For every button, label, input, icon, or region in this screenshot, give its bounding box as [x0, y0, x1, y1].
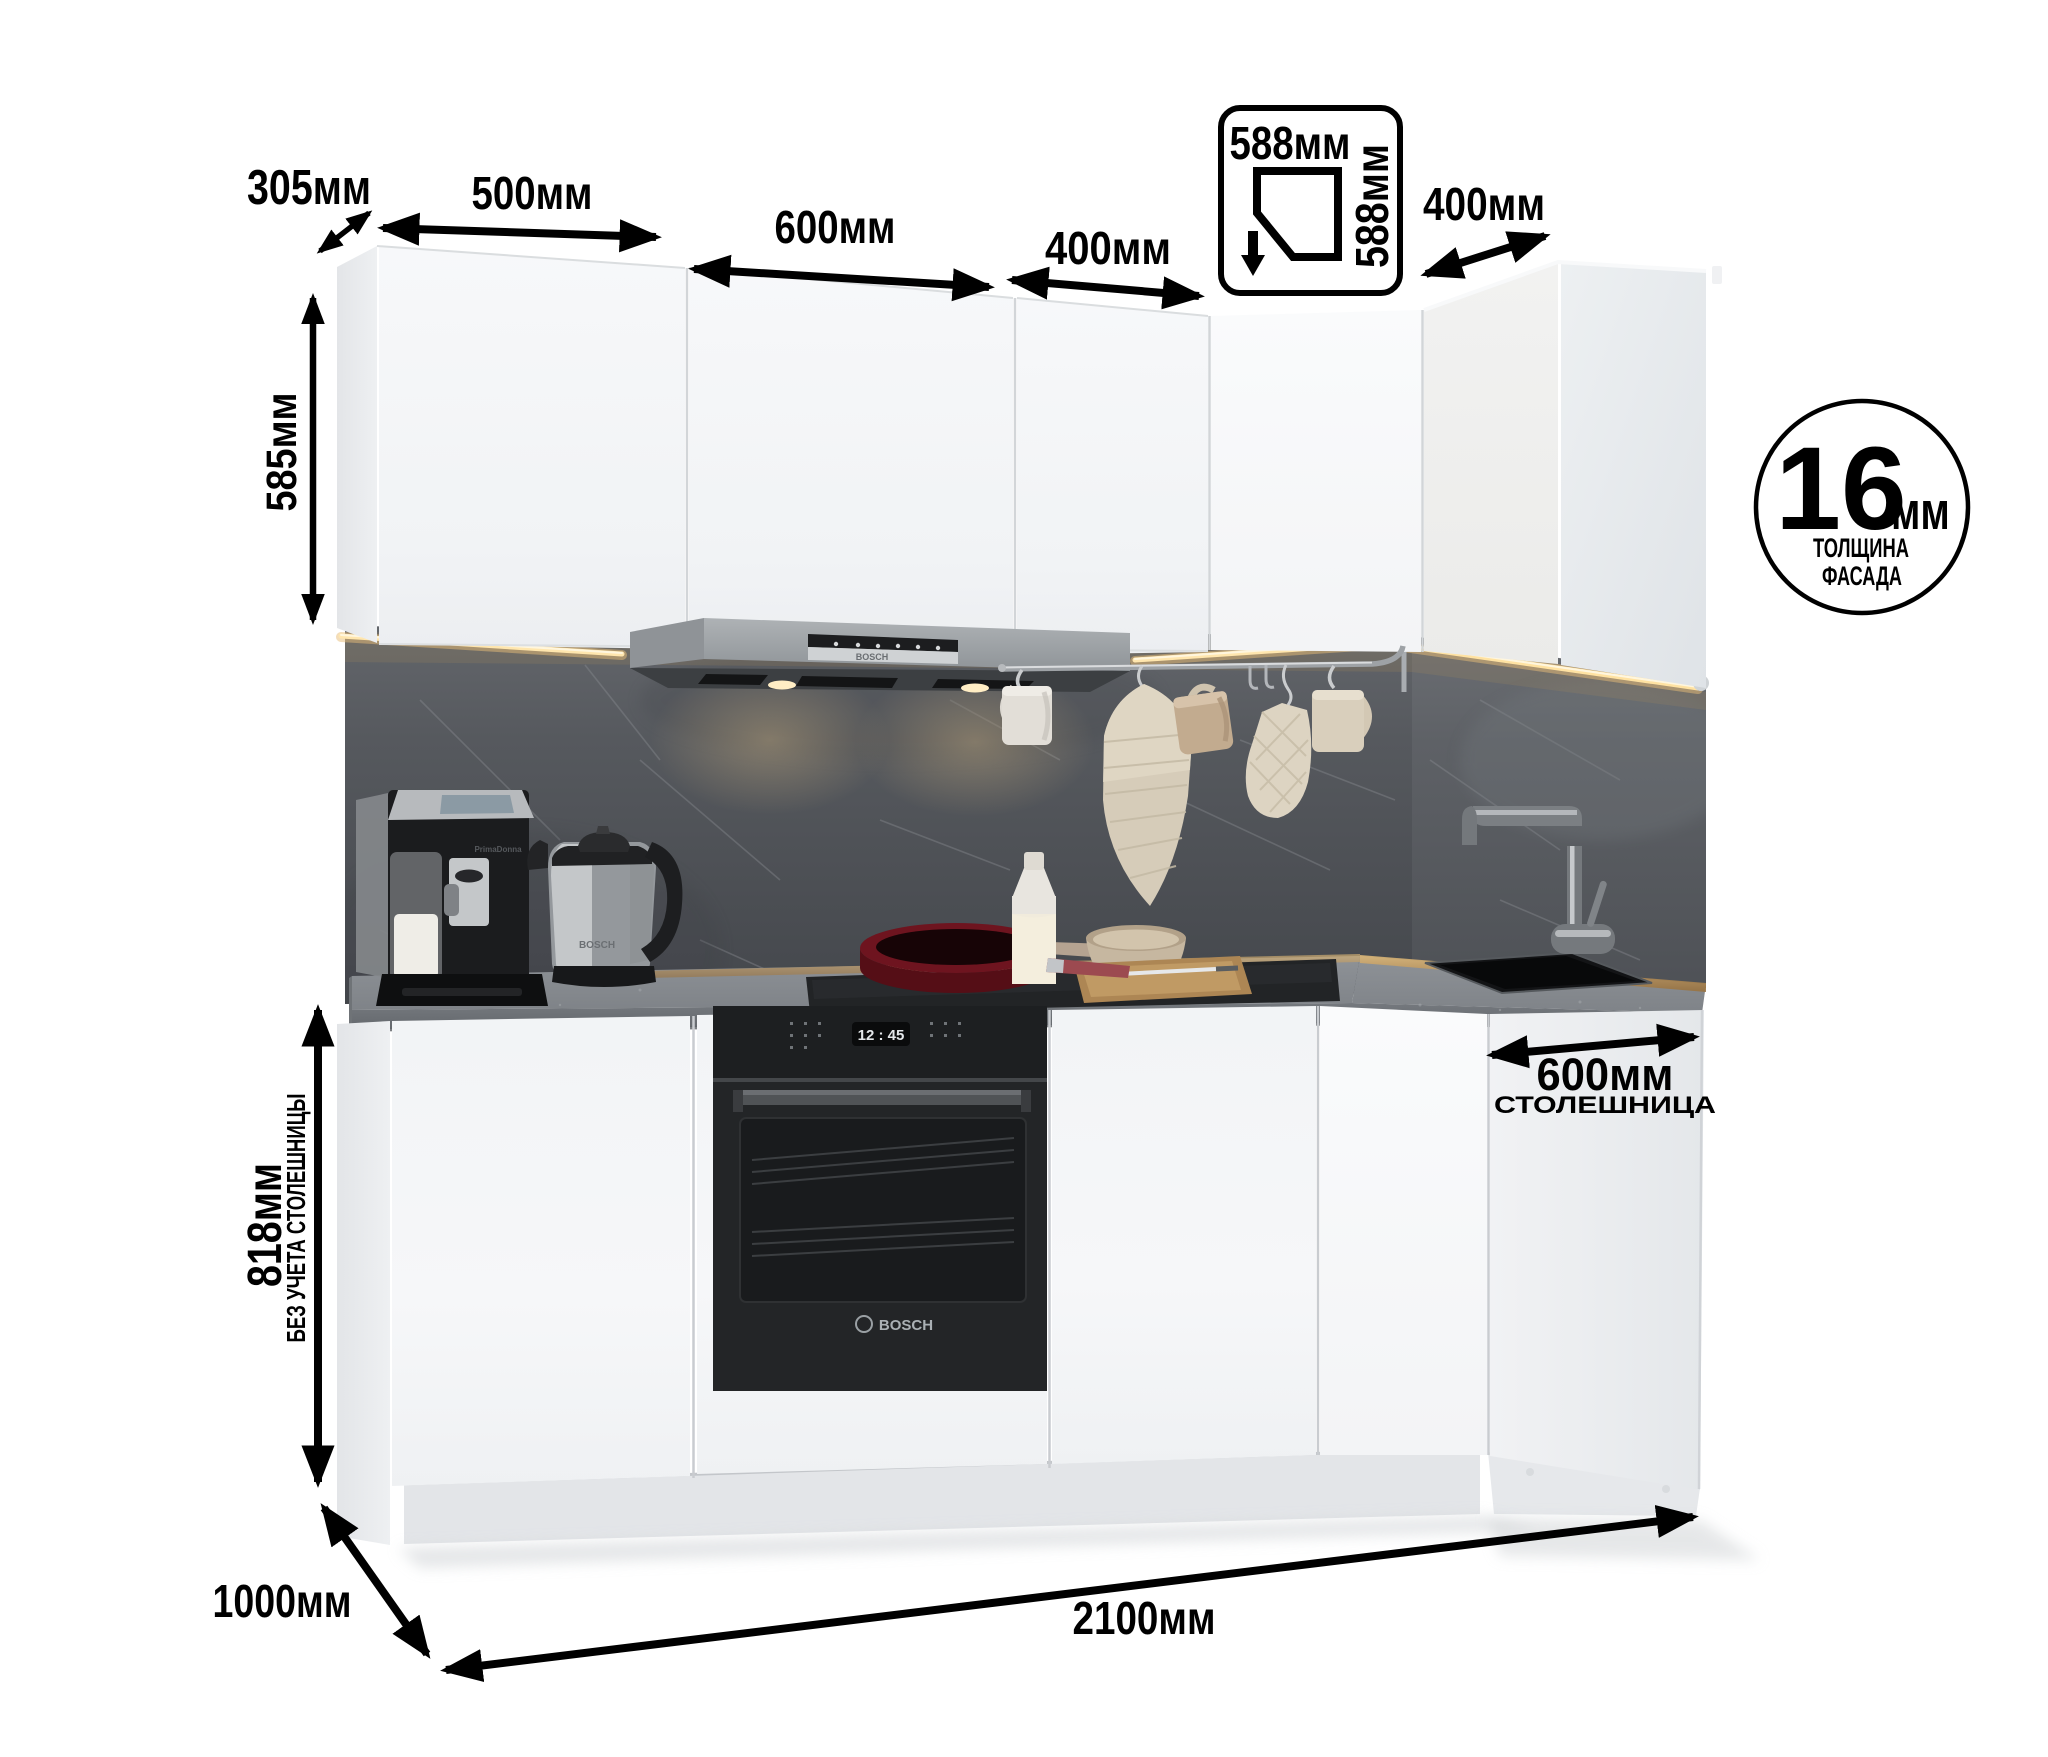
svg-text:СТОЛЕШНИЦА: СТОЛЕШНИЦА	[1494, 1092, 1716, 1119]
svg-text:BOSCH: BOSCH	[856, 652, 889, 662]
svg-text:БЕЗ УЧЕТА СТОЛЕШНИЦЫ: БЕЗ УЧЕТА СТОЛЕШНИЦЫ	[281, 1094, 311, 1343]
svg-text:585мм: 585мм	[258, 393, 306, 512]
svg-text:мм: мм	[1891, 481, 1950, 540]
svg-text:588мм: 588мм	[1230, 117, 1351, 169]
svg-text:305мм: 305мм	[247, 161, 371, 215]
svg-text:500мм: 500мм	[472, 167, 593, 219]
svg-text:600мм: 600мм	[775, 201, 896, 253]
svg-text:ТОЛЩИНА: ТОЛЩИНА	[1813, 533, 1909, 563]
svg-text:2100мм: 2100мм	[1073, 1592, 1216, 1644]
svg-text:ФАСАДА: ФАСАДА	[1822, 561, 1902, 591]
svg-text:400мм: 400мм	[1045, 222, 1171, 274]
svg-text:12 : 45: 12 : 45	[858, 1027, 905, 1044]
svg-text:BOSCH: BOSCH	[879, 1317, 933, 1334]
svg-text:BOSCH: BOSCH	[579, 940, 615, 951]
svg-text:PrimaDonna: PrimaDonna	[474, 845, 522, 854]
svg-text:588мм: 588мм	[1346, 144, 1398, 268]
svg-text:400мм: 400мм	[1423, 178, 1545, 230]
svg-text:1000мм: 1000мм	[213, 1575, 352, 1627]
